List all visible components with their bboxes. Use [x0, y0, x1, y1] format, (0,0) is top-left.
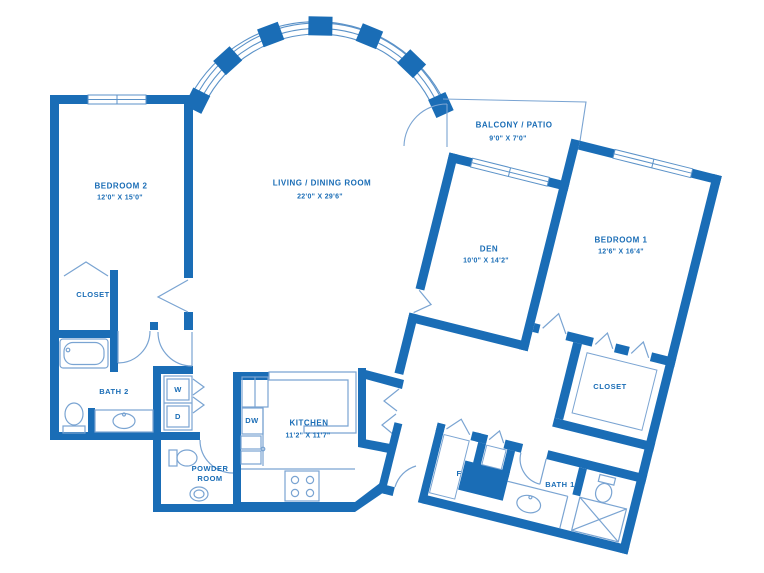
- bedroom2-door: [158, 280, 188, 312]
- f-closet-door: [446, 416, 472, 434]
- kitchen-dims: 11'2" X 11'7": [285, 431, 330, 440]
- living-dining-label: LIVING / DINING ROOM: [273, 179, 371, 190]
- den-dims: 10'0" X 14'2": [463, 256, 509, 265]
- l-closet-door: [489, 429, 506, 443]
- dryer-label: D: [175, 412, 181, 422]
- sink-icon: [241, 436, 261, 449]
- stove-icon: [285, 471, 319, 501]
- den-door: [414, 290, 434, 316]
- toilet-icon: [594, 482, 614, 504]
- closet1-label: CLOSET: [593, 382, 626, 392]
- sink-icon: [190, 487, 208, 501]
- bedroom2-label: BEDROOM 2: [95, 182, 148, 193]
- bedroom2-window: [88, 95, 146, 104]
- bedroom1-dims: 12'6" X 16'4": [598, 247, 644, 256]
- bedroom1-door: [543, 311, 571, 334]
- powder-room-label: POWDER ROOM: [186, 464, 234, 484]
- closet2-label: CLOSET: [76, 290, 109, 300]
- entry-door: [395, 466, 416, 487]
- bath1-door: [515, 453, 547, 485]
- living-dining-dims: 22'0" X 29'6": [297, 192, 343, 201]
- dishwasher-label: DW: [245, 416, 259, 426]
- bath1-label: BATH 1: [545, 480, 575, 490]
- bedroom1-window: [613, 149, 693, 177]
- toilet-icon: [65, 403, 83, 425]
- bath2-label: BATH 2: [99, 387, 129, 397]
- floor-plan-canvas: BEDROOM 2 12'0" X 15'0" CLOSET BATH 2 W …: [0, 0, 764, 573]
- closet2-door: [64, 262, 108, 276]
- hall-door: [158, 332, 192, 366]
- l-closet-label: L: [486, 465, 491, 475]
- floor-plan: [0, 0, 764, 573]
- washer-label: W: [174, 385, 182, 395]
- bedroom2-dims: 12'0" X 15'0": [97, 193, 143, 202]
- bathtub-icon: [60, 339, 108, 368]
- bath2-door: [118, 331, 150, 363]
- laundry-doors: [193, 379, 204, 413]
- balcony-dims: 9'0" X 7'0": [489, 134, 526, 143]
- kitchen-label: KITCHEN: [289, 419, 328, 430]
- balcony-label: BALCONY / PATIO: [476, 121, 553, 132]
- arched-wall-posts: [184, 16, 453, 118]
- bedroom1-label: BEDROOM 1: [595, 236, 648, 247]
- walls-left-wing: [50, 95, 404, 512]
- den-label: DEN: [480, 245, 498, 256]
- f-closet-label: F: [456, 469, 461, 479]
- right-wing: [365, 111, 721, 555]
- den-balcony-window: [471, 158, 550, 186]
